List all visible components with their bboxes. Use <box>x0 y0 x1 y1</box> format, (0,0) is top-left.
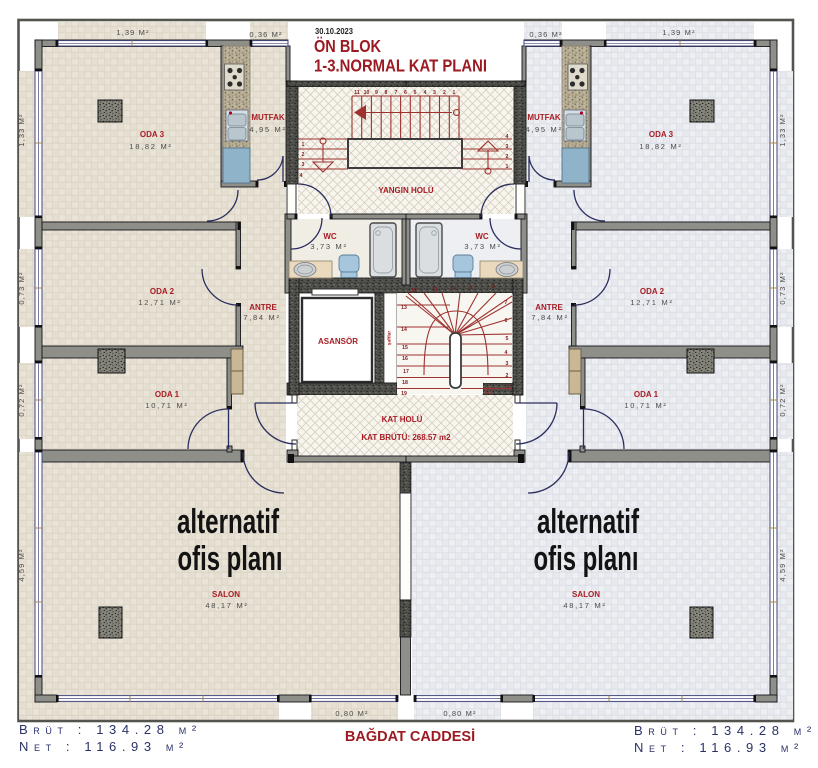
svg-text:4,95 M²: 4,95 M² <box>249 125 286 134</box>
svg-text:0,73 M²: 0,73 M² <box>778 271 787 304</box>
svg-text:1,33 M²: 1,33 M² <box>778 113 787 146</box>
svg-text:şaftlar: şaftlar <box>387 331 393 346</box>
svg-text:19: 19 <box>401 391 407 397</box>
svg-text:2: 2 <box>506 373 509 379</box>
svg-text:4: 4 <box>505 350 508 356</box>
svg-text:4: 4 <box>300 173 303 179</box>
svg-text:2: 2 <box>302 152 305 158</box>
svg-text:4: 4 <box>424 90 427 96</box>
svg-text:30.10.2023: 30.10.2023 <box>315 26 353 36</box>
svg-text:0,73 M²: 0,73 M² <box>17 271 26 304</box>
svg-text:ASANSÖR: ASANSÖR <box>318 337 358 346</box>
svg-text:0,80 M²: 0,80 M² <box>335 709 368 718</box>
svg-text:10: 10 <box>450 286 456 292</box>
svg-text:alternatif: alternatif <box>537 503 639 541</box>
svg-text:ANTRE: ANTRE <box>249 303 277 312</box>
svg-text:6: 6 <box>404 90 407 96</box>
svg-text:48,17 M²: 48,17 M² <box>205 601 248 610</box>
svg-text:Brüt : 134.28 m²: Brüt : 134.28 m² <box>19 722 202 737</box>
svg-text:9: 9 <box>470 285 473 291</box>
svg-text:10: 10 <box>364 90 370 96</box>
svg-text:alternatif: alternatif <box>177 503 279 541</box>
svg-text:0,72 M²: 0,72 M² <box>17 383 26 416</box>
svg-text:1-3.NORMAL KAT PLANI: 1-3.NORMAL KAT PLANI <box>314 56 487 76</box>
svg-text:18: 18 <box>402 380 408 386</box>
svg-text:4,95 M²: 4,95 M² <box>525 125 562 134</box>
svg-text:6: 6 <box>505 318 508 324</box>
svg-text:ANTRE: ANTRE <box>535 303 563 312</box>
svg-text:3,73 M²: 3,73 M² <box>464 242 501 251</box>
svg-text:18,82 M²: 18,82 M² <box>639 142 682 151</box>
svg-text:5: 5 <box>506 336 509 342</box>
svg-text:7,84 M²: 7,84 M² <box>243 313 280 322</box>
svg-text:ÖN BLOK: ÖN BLOK <box>314 36 381 56</box>
svg-text:4: 4 <box>506 134 509 140</box>
svg-text:3: 3 <box>433 90 436 96</box>
svg-text:8: 8 <box>492 284 495 290</box>
svg-text:SALON: SALON <box>572 590 600 599</box>
svg-text:ofis planı: ofis planı <box>534 540 639 578</box>
svg-text:3: 3 <box>506 144 509 150</box>
svg-text:0,72 M²: 0,72 M² <box>778 383 787 416</box>
svg-text:7: 7 <box>505 300 508 306</box>
svg-text:WC: WC <box>475 232 489 241</box>
svg-text:17: 17 <box>403 369 409 375</box>
svg-text:ODA 2: ODA 2 <box>150 287 175 296</box>
svg-text:MUTFAK: MUTFAK <box>527 113 561 122</box>
svg-text:3: 3 <box>506 361 509 367</box>
svg-text:SALON: SALON <box>212 590 240 599</box>
svg-text:12: 12 <box>411 288 417 294</box>
svg-text:11: 11 <box>354 90 360 96</box>
svg-text:48,17 M²: 48,17 M² <box>563 601 606 610</box>
svg-text:Brüt : 134.28 m²: Brüt : 134.28 m² <box>634 723 817 738</box>
svg-text:7: 7 <box>395 90 398 96</box>
svg-text:2: 2 <box>506 154 509 160</box>
svg-text:KAT HOLÜ: KAT HOLÜ <box>382 415 423 424</box>
svg-text:18,82 M²: 18,82 M² <box>129 142 172 151</box>
svg-text:16: 16 <box>402 356 408 362</box>
svg-text:0,36 M²: 0,36 M² <box>249 30 282 39</box>
svg-text:4,59 M²: 4,59 M² <box>17 548 26 581</box>
svg-text:7,84 M²: 7,84 M² <box>531 313 568 322</box>
svg-text:0,36 M²: 0,36 M² <box>529 30 562 39</box>
svg-text:1,39 M²: 1,39 M² <box>662 28 695 37</box>
svg-text:12,71 M²: 12,71 M² <box>630 298 673 307</box>
svg-text:WC: WC <box>323 232 337 241</box>
svg-text:0,80 M²: 0,80 M² <box>443 709 476 718</box>
svg-text:1: 1 <box>507 384 510 390</box>
svg-text:ofis planı: ofis planı <box>178 540 283 578</box>
svg-text:Net : 116.93 m²: Net : 116.93 m² <box>634 740 804 755</box>
svg-text:10,71 M²: 10,71 M² <box>145 401 188 410</box>
svg-text:10,71 M²: 10,71 M² <box>624 401 667 410</box>
svg-text:1: 1 <box>453 90 456 96</box>
svg-text:KAT BRÜTÜ: 268.57 m2: KAT BRÜTÜ: 268.57 m2 <box>361 433 451 442</box>
svg-text:ODA 1: ODA 1 <box>634 390 659 399</box>
svg-text:12,71 M²: 12,71 M² <box>138 298 181 307</box>
svg-text:ODA 1: ODA 1 <box>155 390 180 399</box>
svg-text:MUTFAK: MUTFAK <box>251 113 285 122</box>
svg-text:1,33 M²: 1,33 M² <box>17 113 26 146</box>
svg-text:8: 8 <box>385 90 388 96</box>
svg-text:11: 11 <box>432 287 438 293</box>
svg-text:Net : 116.93 m²: Net : 116.93 m² <box>19 739 189 754</box>
svg-text:BAĞDAT CADDESİ: BAĞDAT CADDESİ <box>345 727 475 745</box>
svg-text:4,59 M²: 4,59 M² <box>778 548 787 581</box>
svg-text:ODA 3: ODA 3 <box>649 130 674 139</box>
svg-text:1: 1 <box>506 164 509 170</box>
svg-text:9: 9 <box>375 90 378 96</box>
svg-text:5: 5 <box>414 90 417 96</box>
svg-text:2: 2 <box>443 90 446 96</box>
svg-text:1,39 M²: 1,39 M² <box>116 28 149 37</box>
svg-text:1: 1 <box>302 142 305 148</box>
svg-text:14: 14 <box>401 327 407 333</box>
svg-text:YANGIN HOLÜ: YANGIN HOLÜ <box>378 186 433 195</box>
svg-text:15: 15 <box>402 345 408 351</box>
svg-text:3: 3 <box>302 162 305 168</box>
svg-text:13: 13 <box>401 305 407 311</box>
svg-text:3,73 M²: 3,73 M² <box>310 242 347 251</box>
svg-text:ODA 3: ODA 3 <box>140 130 165 139</box>
svg-text:ODA 2: ODA 2 <box>640 287 665 296</box>
